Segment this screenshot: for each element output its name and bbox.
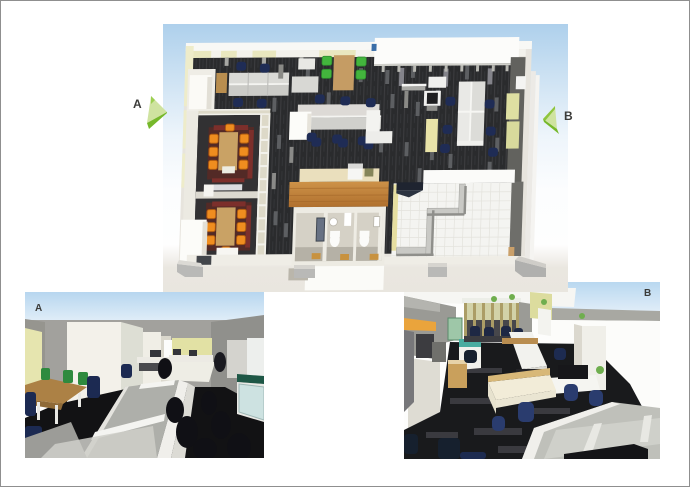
svg-text:B: B xyxy=(644,288,651,299)
svg-text:A: A xyxy=(35,303,42,314)
